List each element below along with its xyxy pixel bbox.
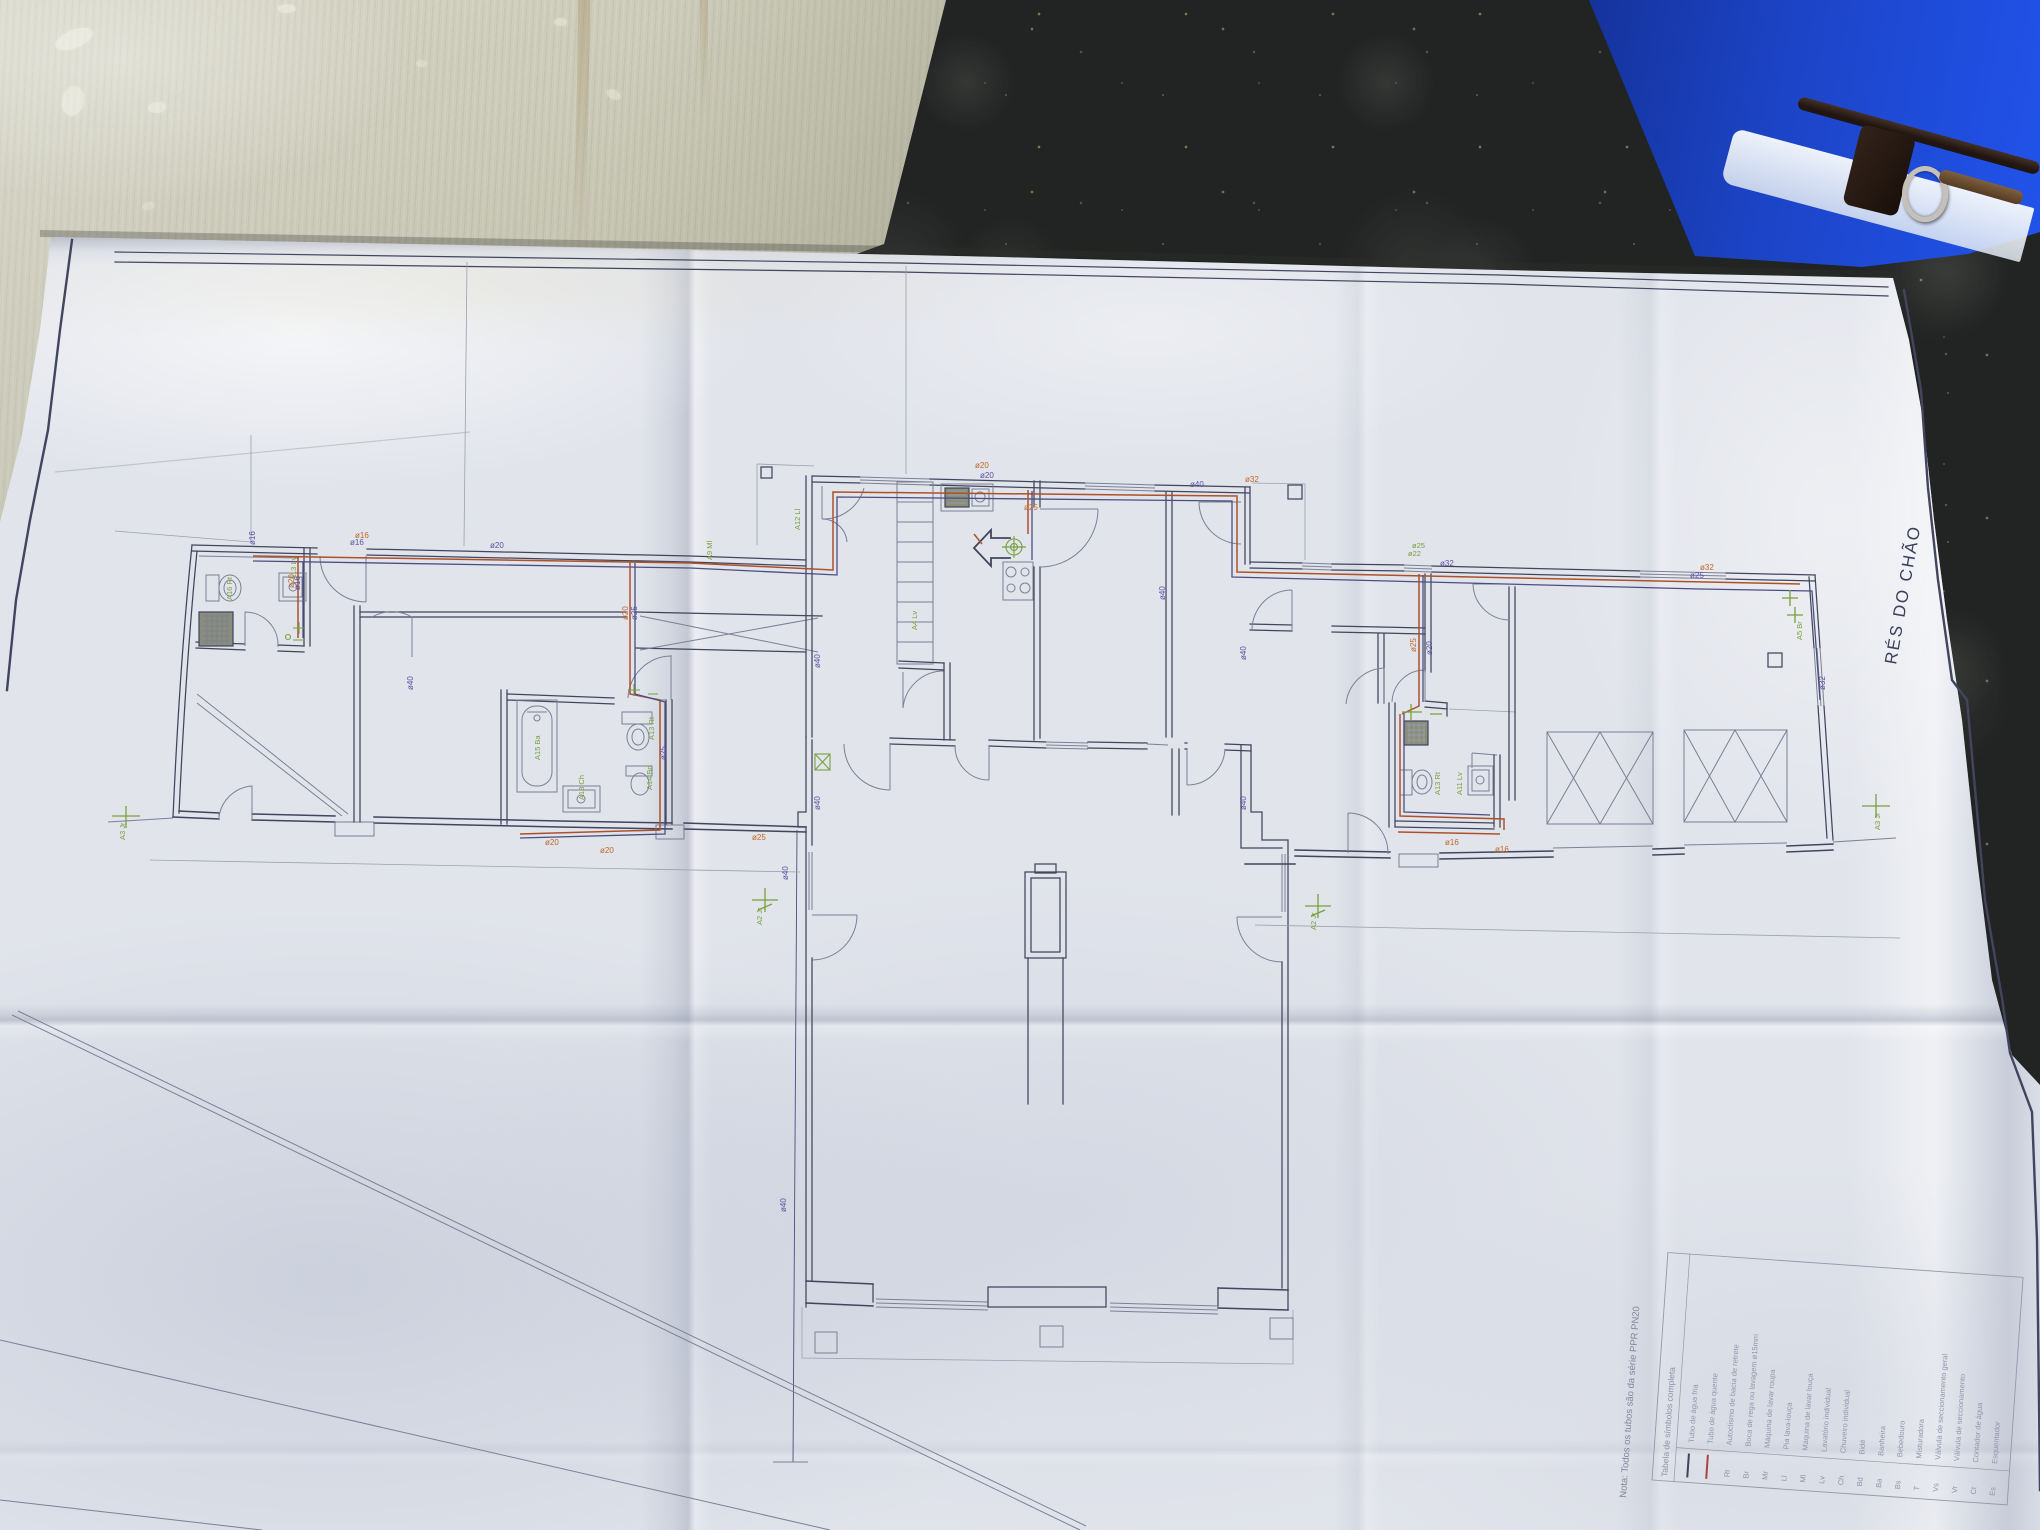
svg-text:Br: Br: [1741, 1470, 1751, 1479]
svg-text:T: T: [1912, 1485, 1921, 1491]
svg-text:ø40: ø40: [406, 676, 415, 690]
svg-text:Válvula de seccionamento: Válvula de seccionamento: [1952, 1374, 1967, 1462]
svg-text:ø25: ø25: [1409, 638, 1418, 652]
svg-text:ø20: ø20: [490, 541, 504, 550]
svg-text:ø32: ø32: [1245, 475, 1259, 484]
svg-text:Rt: Rt: [1722, 1469, 1732, 1478]
svg-text:Bd: Bd: [1855, 1477, 1865, 1487]
svg-text:A16 Rt: A16 Rt: [225, 576, 234, 600]
svg-text:A2 Jr: A2 Jr: [755, 907, 764, 925]
svg-text:A13 Ch: A13 Ch: [577, 775, 586, 800]
svg-text:Bidé: Bidé: [1857, 1439, 1867, 1455]
svg-text:Pia lava-louça: Pia lava-louça: [1781, 1401, 1793, 1449]
svg-text:A3 Jr: A3 Jr: [1873, 812, 1882, 830]
svg-text:A2 Jr: A2 Jr: [1309, 912, 1318, 930]
svg-text:Vs: Vs: [1931, 1483, 1941, 1493]
svg-text:ø25: ø25: [659, 746, 668, 760]
svg-text:ø40: ø40: [813, 654, 822, 668]
svg-text:ø40: ø40: [779, 1198, 788, 1212]
svg-text:Máquina de lavar louça: Máquina de lavar louça: [1800, 1372, 1814, 1451]
svg-text:ø20: ø20: [975, 461, 989, 470]
svg-text:Bebedouro: Bebedouro: [1895, 1420, 1907, 1457]
svg-text:ø22: ø22: [1408, 549, 1421, 558]
svg-text:Máquina de lavar roupa: Máquina de lavar roupa: [1763, 1368, 1778, 1448]
svg-text:Ba: Ba: [1874, 1478, 1884, 1489]
svg-text:Vr: Vr: [1950, 1485, 1960, 1493]
svg-text:ø40: ø40: [1158, 586, 1167, 600]
svg-text:ø20: ø20: [621, 606, 630, 620]
svg-text:ø25: ø25: [1024, 503, 1038, 512]
svg-text:ø40: ø40: [1239, 646, 1248, 660]
svg-text:ø40: ø40: [781, 866, 790, 880]
svg-text:Válvula de seccionamento geral: Válvula de seccionamento geral: [1933, 1353, 1949, 1460]
svg-text:ø20: ø20: [980, 471, 994, 480]
svg-text:Boca de rega ou lavagem ø15mm: Boca de rega ou lavagem ø15mm: [1744, 1334, 1761, 1447]
svg-text:Ml: Ml: [1798, 1474, 1808, 1483]
svg-text:ø40: ø40: [813, 796, 822, 810]
svg-text:A5 Br: A5 Br: [1795, 621, 1804, 640]
svg-text:Nota: Todos os tubos são da s: Nota: Todos os tubos são da série PPR PN…: [1618, 1306, 1642, 1498]
svg-text:A9 Ml: A9 Ml: [705, 540, 714, 560]
svg-text:A13 Rt: A13 Rt: [1433, 771, 1442, 795]
svg-text:ø40: ø40: [1190, 480, 1204, 489]
svg-text:ø40: ø40: [1239, 796, 1248, 810]
svg-text:Tubo de água quente: Tubo de água quente: [1706, 1373, 1720, 1445]
svg-text:ø20: ø20: [545, 838, 559, 847]
svg-text:Mr: Mr: [1760, 1470, 1770, 1480]
svg-text:A11 Lv: A11 Lv: [1455, 772, 1464, 795]
svg-text:A3 Jr: A3 Jr: [118, 822, 127, 840]
svg-text:ø16: ø16: [1445, 838, 1459, 847]
svg-text:Tubo de água fria: Tubo de água fria: [1687, 1383, 1700, 1443]
svg-text:Banheira: Banheira: [1876, 1425, 1887, 1456]
svg-text:ø16: ø16: [1495, 845, 1509, 854]
svg-text:Esquentador: Esquentador: [1990, 1421, 2002, 1465]
svg-text:Bs: Bs: [1893, 1480, 1903, 1490]
svg-text:ø25: ø25: [1412, 541, 1425, 550]
svg-text:ø20: ø20: [1425, 641, 1434, 655]
svg-text:Ll: Ll: [1779, 1475, 1788, 1482]
svg-text:A13 Rt: A13 Rt: [647, 716, 656, 740]
svg-text:Es: Es: [1988, 1486, 1998, 1496]
svg-text:ø32: ø32: [1700, 563, 1714, 572]
svg-text:ø25: ø25: [752, 833, 766, 842]
svg-text:ø25: ø25: [630, 606, 639, 620]
svg-text:ø20: ø20: [600, 846, 614, 855]
svg-text:A12 Ll: A12 Ll: [793, 508, 802, 530]
svg-text:ø16: ø16: [355, 531, 369, 540]
svg-text:Contador de água: Contador de água: [1971, 1401, 1984, 1462]
svg-text:Ch: Ch: [1836, 1475, 1846, 1485]
svg-text:Lavatório individual: Lavatório individual: [1819, 1387, 1832, 1452]
svg-text:A4 Lv: A4 Lv: [910, 611, 919, 630]
svg-text:Tabela de símbolos completa: Tabela de símbolos completa: [1659, 1366, 1677, 1477]
svg-text:ø25: ø25: [1690, 571, 1704, 580]
svg-text:ø32: ø32: [1440, 559, 1454, 568]
svg-text:ø32: ø32: [1818, 676, 1827, 690]
svg-text:A14 Bd: A14 Bd: [645, 765, 654, 790]
svg-text:RÉS DO CHÃO: RÉS DO CHÃO: [1881, 524, 1924, 666]
svg-text:Misturadora: Misturadora: [1914, 1418, 1926, 1459]
svg-text:A15 Ba: A15 Ba: [533, 735, 542, 760]
svg-text:Ct: Ct: [1969, 1486, 1979, 1495]
svg-text:Lv: Lv: [1817, 1475, 1827, 1484]
svg-text:Chuveiro individual: Chuveiro individual: [1838, 1389, 1851, 1453]
svg-text:A13 Lv: A13 Lv: [289, 556, 298, 580]
svg-text:Autoclismo de bacia de retrete: Autoclismo de bacia de retrete: [1725, 1344, 1741, 1446]
svg-text:ø16: ø16: [248, 531, 257, 545]
